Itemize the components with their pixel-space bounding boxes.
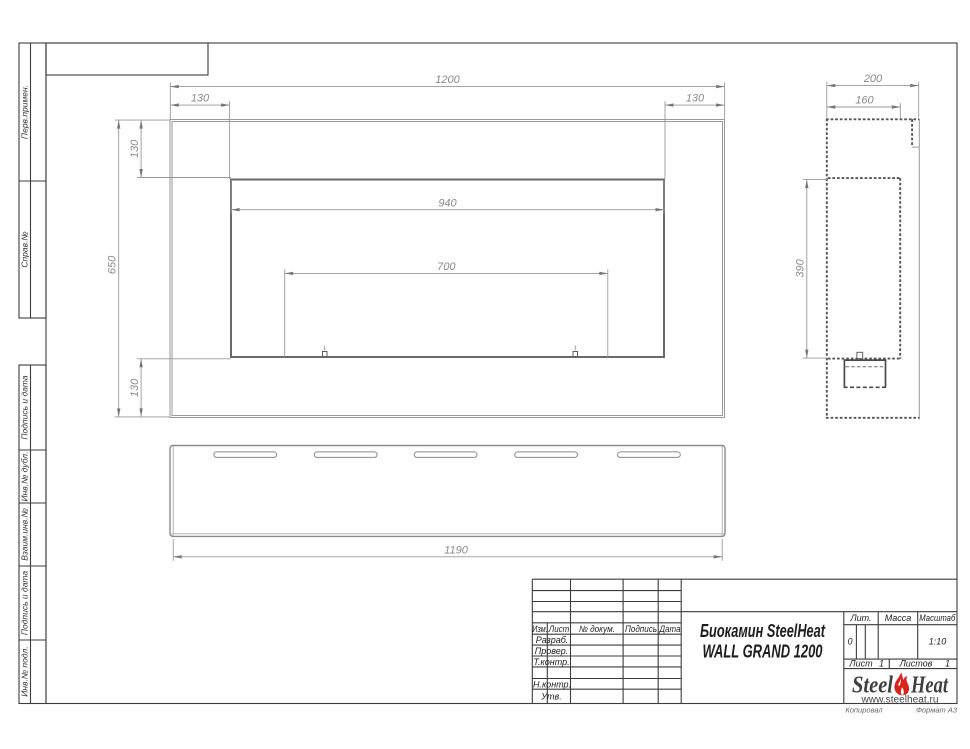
- svg-text:Лист: Лист: [848, 658, 873, 668]
- svg-text:Биокамин SteelHeat: Биокамин SteelHeat: [700, 620, 826, 641]
- svg-text:390: 390: [795, 258, 807, 277]
- svg-text:Н.контр.: Н.контр.: [533, 680, 571, 690]
- svg-text:Масса: Масса: [885, 613, 912, 623]
- svg-text:www.steelheat.ru: www.steelheat.ru: [860, 695, 938, 706]
- svg-text:Перв.примен.: Перв.примен.: [20, 85, 30, 139]
- svg-text:Дата: Дата: [659, 624, 681, 634]
- svg-text:Инв.№ дубл.: Инв.№ дубл.: [20, 452, 30, 502]
- svg-text:650: 650: [106, 255, 118, 274]
- svg-text:WALL GRAND 1200: WALL GRAND 1200: [703, 641, 823, 662]
- svg-text:Утв.: Утв.: [540, 692, 561, 702]
- svg-text:Справ.№: Справ.№: [20, 231, 30, 267]
- svg-text:0: 0: [847, 637, 852, 647]
- svg-text:130: 130: [191, 93, 210, 105]
- svg-text:1:10: 1:10: [929, 637, 947, 647]
- svg-text:Разраб.: Разраб.: [536, 635, 569, 645]
- svg-text:1: 1: [945, 658, 950, 668]
- svg-text:Инв.№ подл.: Инв.№ подл.: [20, 646, 30, 696]
- svg-text:Листов: Листов: [899, 658, 933, 668]
- svg-text:Копировал: Копировал: [845, 706, 883, 715]
- svg-text:1200: 1200: [435, 74, 460, 86]
- svg-text:№ докум.: № докум.: [579, 624, 615, 634]
- svg-text:Подпись и дата: Подпись и дата: [20, 375, 30, 440]
- svg-text:130: 130: [129, 378, 141, 397]
- svg-text:Подпись и дата: Подпись и дата: [20, 571, 30, 636]
- svg-text:700: 700: [437, 261, 456, 273]
- svg-text:Лист: Лист: [548, 624, 570, 634]
- svg-text:Подпись: Подпись: [625, 624, 657, 634]
- svg-text:130: 130: [686, 93, 705, 105]
- svg-text:Взаим.инв.№: Взаим.инв.№: [20, 508, 30, 561]
- svg-text:1190: 1190: [444, 544, 469, 556]
- svg-text:Провер.: Провер.: [535, 646, 569, 656]
- svg-text:1: 1: [879, 658, 884, 668]
- svg-text:Т.контр.: Т.контр.: [533, 657, 569, 667]
- svg-text:Формат А3: Формат А3: [916, 706, 958, 715]
- svg-text:Изм.: Изм.: [532, 624, 548, 634]
- svg-text:Масштаб: Масштаб: [919, 613, 956, 623]
- svg-text:Лит.: Лит.: [849, 613, 871, 623]
- svg-text:160: 160: [855, 95, 874, 107]
- svg-text:940: 940: [438, 197, 457, 209]
- svg-text:130: 130: [129, 139, 141, 158]
- svg-text:200: 200: [863, 73, 883, 85]
